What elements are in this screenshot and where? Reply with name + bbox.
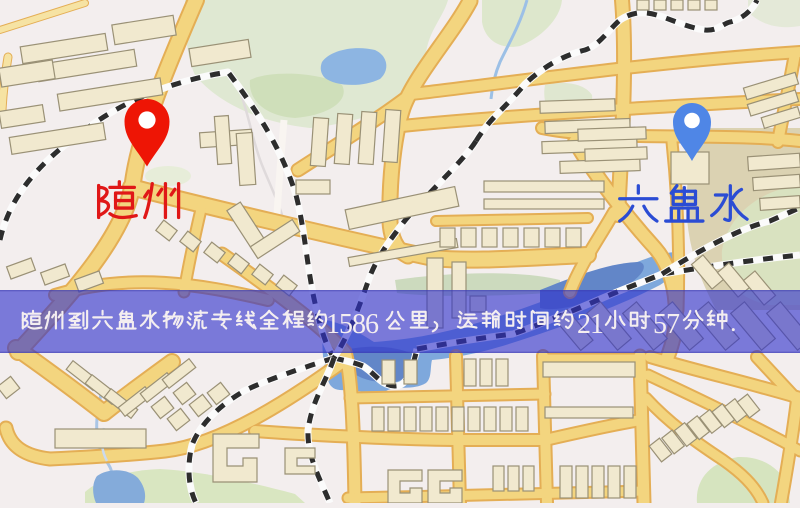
svg-text:21: 21 (577, 309, 603, 340)
svg-text:.: . (730, 308, 737, 337)
svg-text:1586: 1586 (326, 309, 379, 340)
svg-text:57: 57 (653, 309, 680, 340)
